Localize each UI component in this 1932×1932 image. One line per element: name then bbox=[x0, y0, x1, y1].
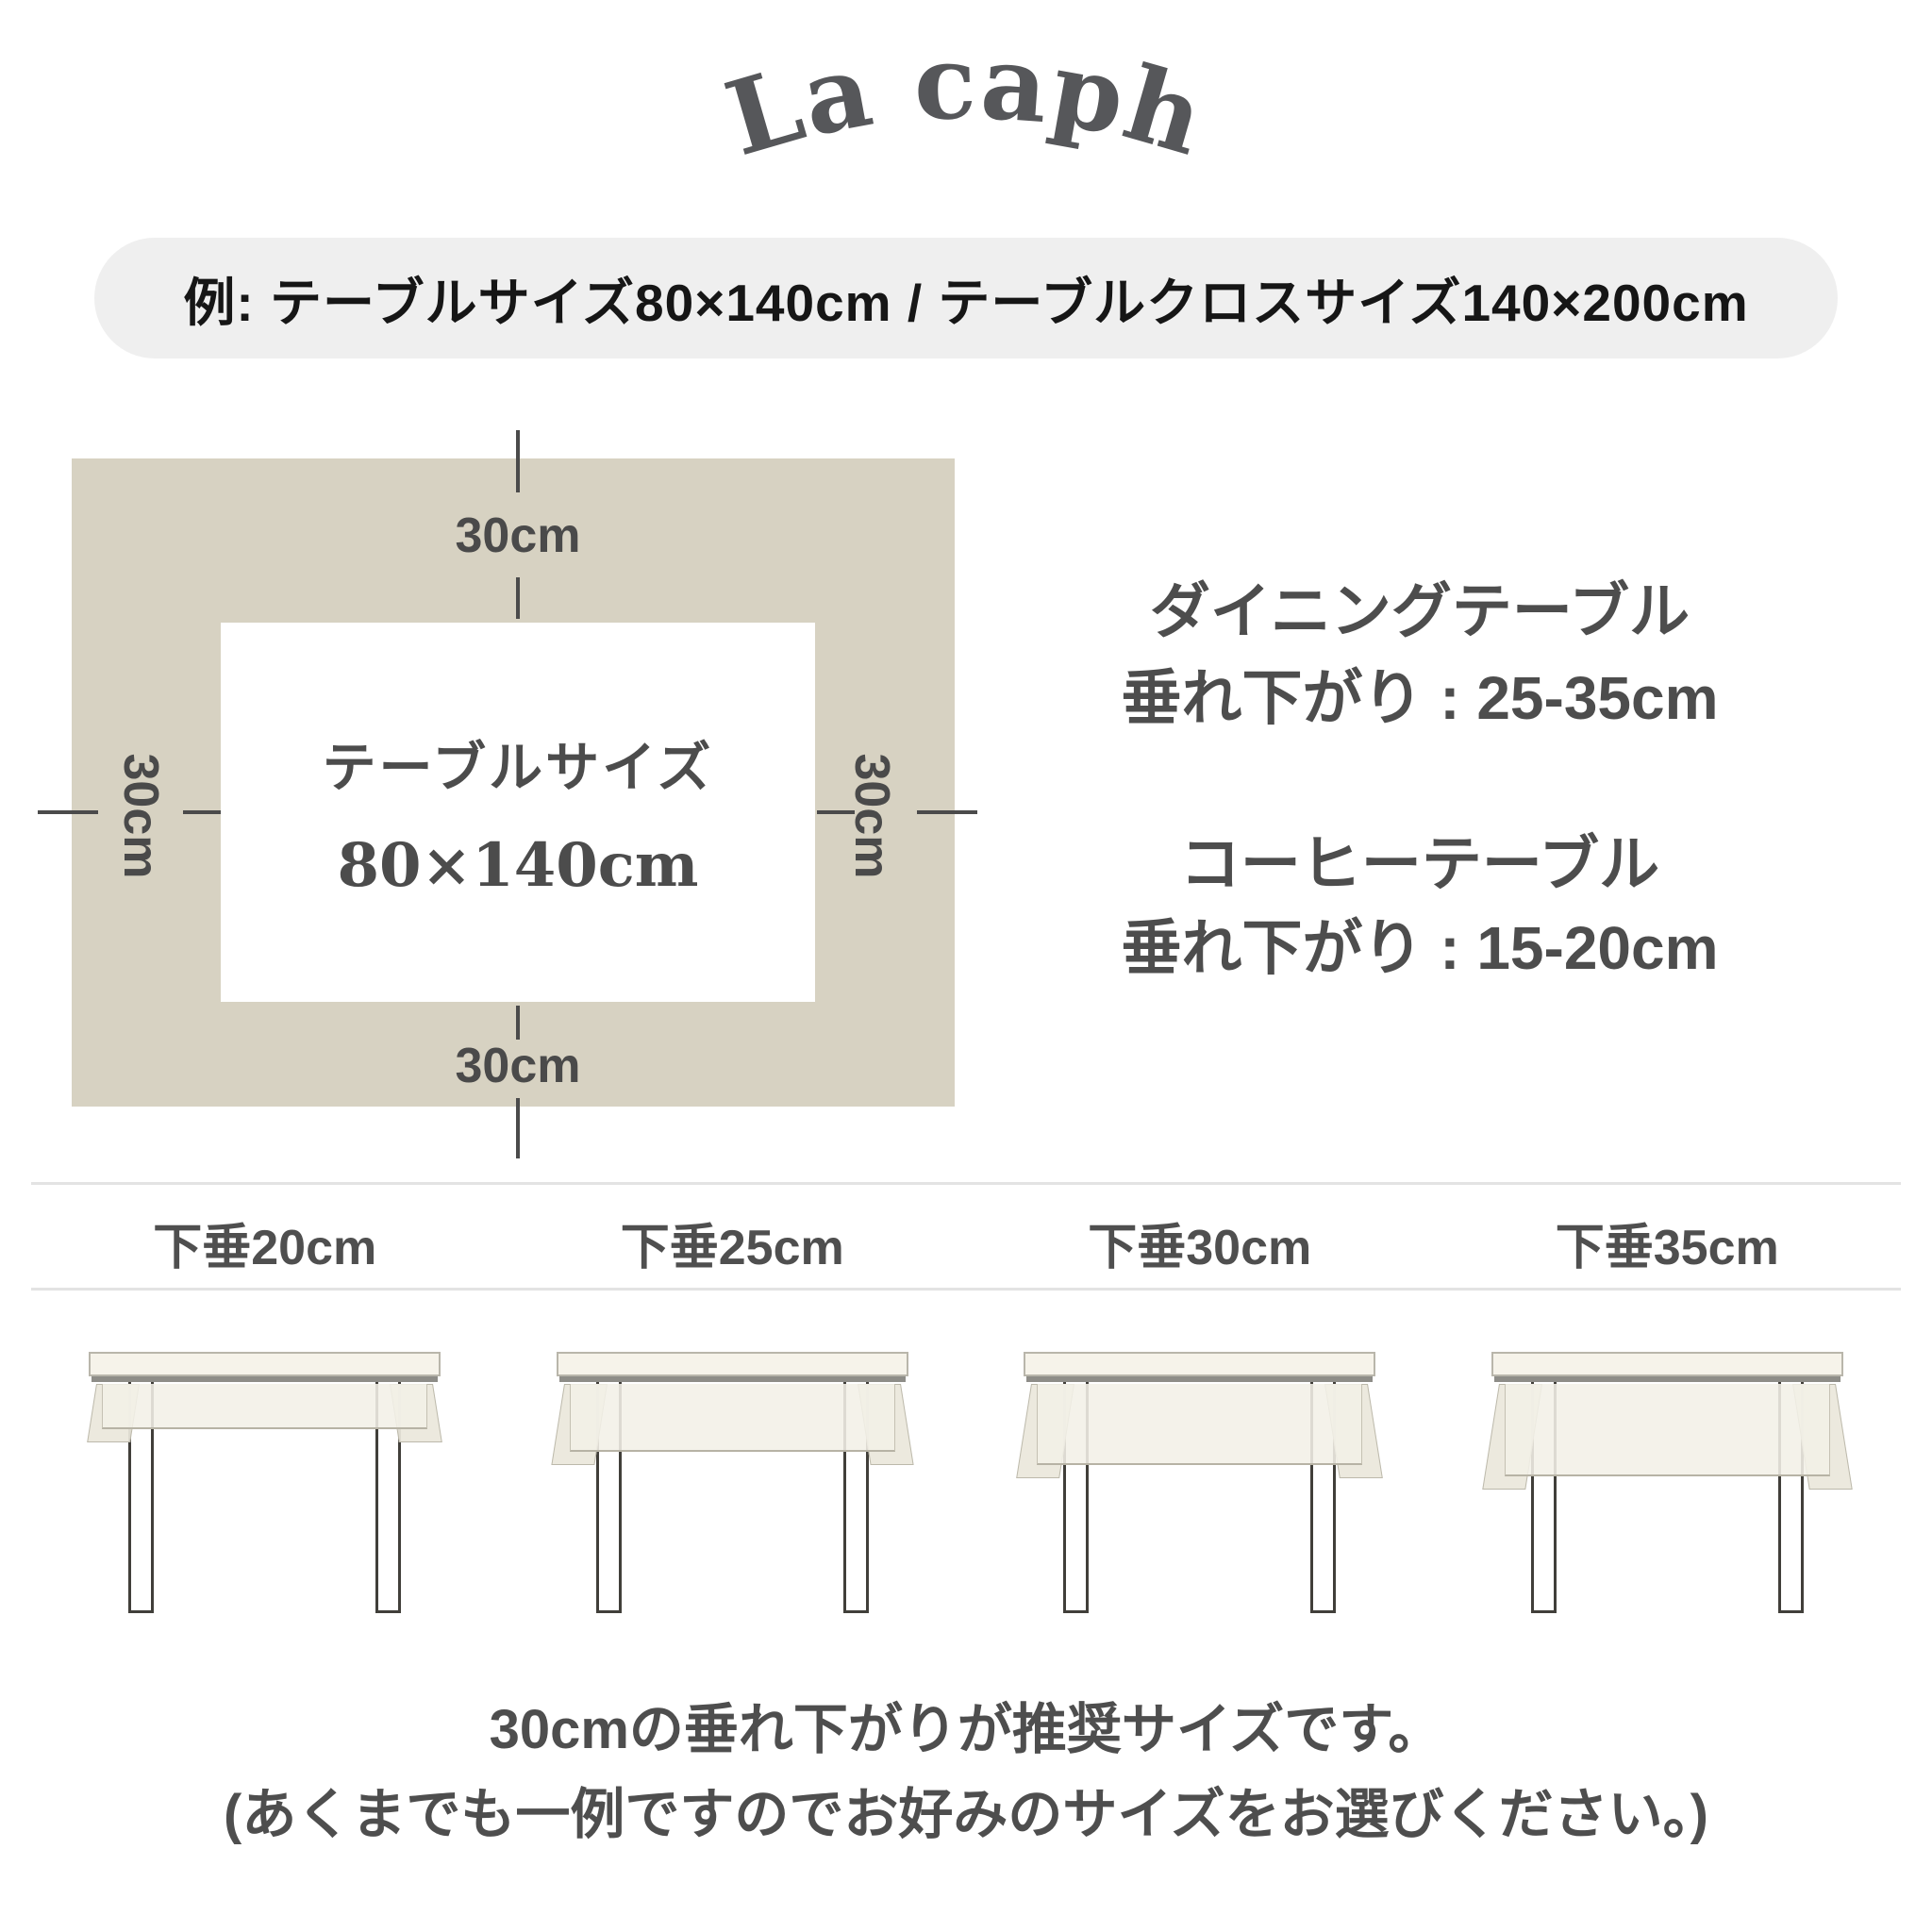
tabletop-edge bbox=[1026, 1376, 1373, 1382]
overhang-label-right: 30cm bbox=[843, 750, 900, 882]
table-illustrations-row bbox=[31, 1352, 1901, 1610]
divider-bottom bbox=[31, 1288, 1901, 1291]
tabletop-edge bbox=[92, 1376, 438, 1382]
svg-text:La caph: La caph bbox=[714, 26, 1218, 179]
drop-label-25: 下垂25cm bbox=[499, 1207, 967, 1278]
table-size-title: テーブルサイズ bbox=[323, 724, 714, 802]
table-size-value: 80×140cm bbox=[338, 830, 699, 901]
tabletop bbox=[1491, 1352, 1843, 1376]
table-illustration-20 bbox=[89, 1352, 441, 1610]
overhang-label-left: 30cm bbox=[112, 750, 169, 882]
brand-text: La caph bbox=[714, 26, 1218, 179]
drop-label-20: 下垂20cm bbox=[31, 1207, 499, 1278]
tabletop-edge bbox=[1494, 1376, 1840, 1382]
example-banner: 例: テーブルサイズ80×140cm / テーブルクロスサイズ140×200cm bbox=[94, 238, 1838, 358]
dash-right-outer bbox=[917, 810, 977, 814]
brand-logo: La caph bbox=[664, 26, 1268, 196]
table-illustration-35 bbox=[1491, 1352, 1843, 1610]
tabletop bbox=[557, 1352, 908, 1376]
footer-note-line2: (あくまでも一例ですのでお好みのサイズをお選びください。) bbox=[0, 1770, 1932, 1849]
table-illustration-25 bbox=[557, 1352, 908, 1610]
dash-top-inner bbox=[516, 577, 520, 619]
drop-label-30: 下垂30cm bbox=[966, 1207, 1434, 1278]
dining-table-title: ダイニングテーブル bbox=[1042, 563, 1797, 650]
brand-logo-arc: La caph bbox=[664, 26, 1268, 196]
table-size-box: テーブルサイズ 80×140cm bbox=[221, 623, 815, 1002]
fig-cell-35 bbox=[1434, 1352, 1902, 1610]
coffee-table-drop: 垂れ下がり : 15-20cm bbox=[1042, 900, 1797, 987]
dash-left-outer bbox=[38, 810, 98, 814]
dash-left-inner bbox=[183, 810, 221, 814]
coffee-table-title: コーヒーテーブル bbox=[1042, 816, 1797, 903]
drop-label-35: 下垂35cm bbox=[1434, 1207, 1902, 1278]
tablecloth-front bbox=[570, 1384, 895, 1452]
fig-cell-25 bbox=[499, 1352, 967, 1610]
dash-bottom-inner bbox=[516, 1006, 520, 1040]
footer-note-line1: 30cmの垂れ下がりが推奨サイズです。 bbox=[0, 1685, 1932, 1764]
tablecloth-front bbox=[102, 1384, 427, 1429]
tabletop bbox=[1024, 1352, 1375, 1376]
tabletop bbox=[89, 1352, 441, 1376]
example-banner-text: 例: テーブルサイズ80×140cm / テーブルクロスサイズ140×200cm bbox=[183, 260, 1748, 336]
tablecloth-front bbox=[1037, 1384, 1362, 1465]
tablecloth-front bbox=[1505, 1384, 1830, 1476]
tablecloth-diagram: テーブルサイズ 80×140cm 30cm 30cm 30cm 30cm bbox=[72, 458, 955, 1107]
dash-bottom-outer bbox=[516, 1098, 520, 1158]
dash-top-outer bbox=[516, 430, 520, 492]
table-illustration-30 bbox=[1024, 1352, 1375, 1610]
overhang-label-top: 30cm bbox=[452, 508, 584, 564]
overhang-label-bottom: 30cm bbox=[452, 1038, 584, 1094]
drop-labels-row: 下垂20cm 下垂25cm 下垂30cm 下垂35cm bbox=[31, 1207, 1901, 1278]
dining-table-drop: 垂れ下がり : 25-35cm bbox=[1042, 650, 1797, 737]
divider-top bbox=[31, 1182, 1901, 1185]
fig-cell-30 bbox=[966, 1352, 1434, 1610]
fig-cell-20 bbox=[31, 1352, 499, 1610]
tabletop-edge bbox=[559, 1376, 906, 1382]
